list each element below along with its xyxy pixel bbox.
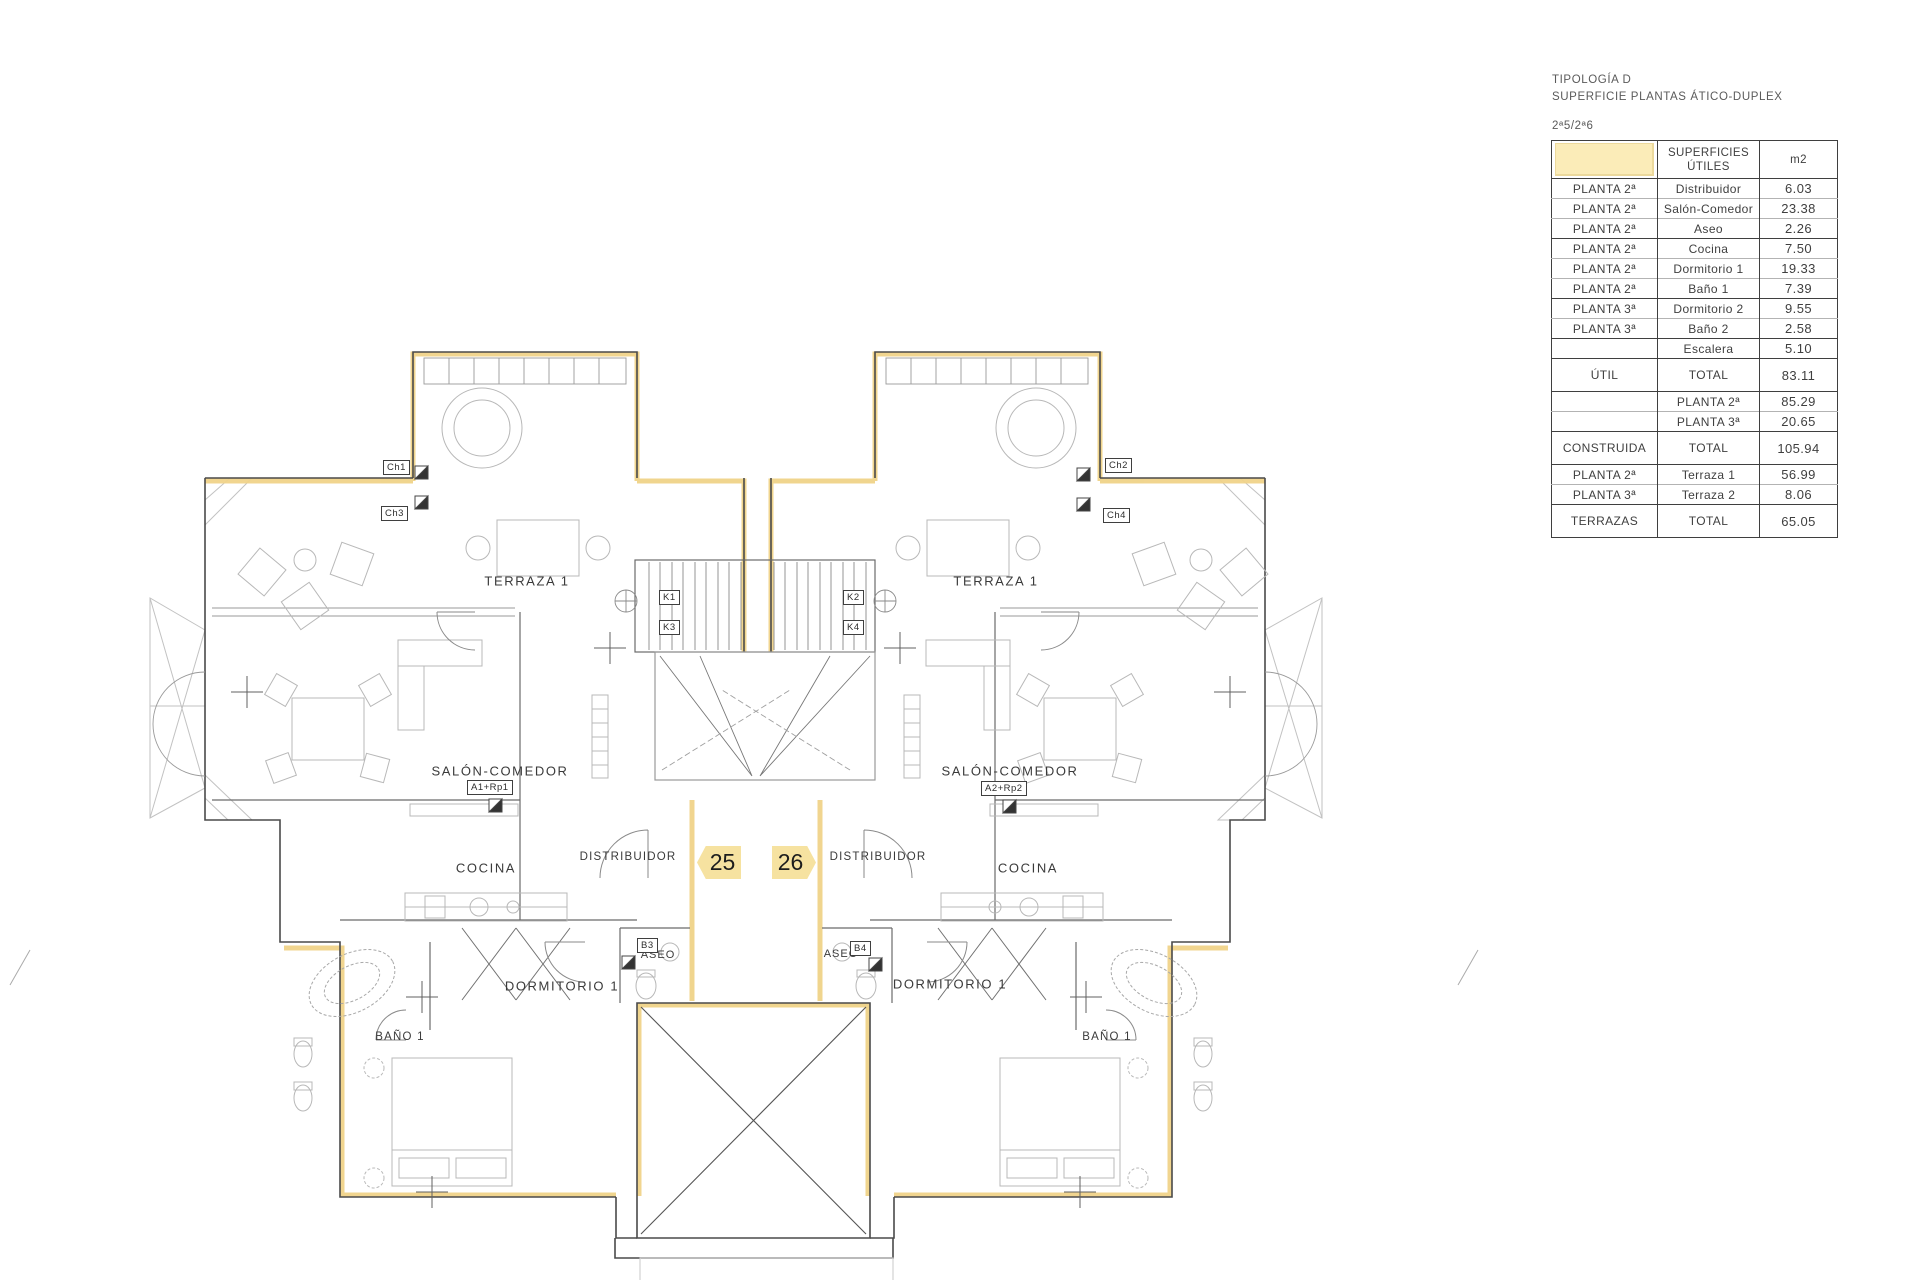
cell-room: Dormitorio 1 — [1658, 259, 1760, 279]
cell-zone: PLANTA 3ª — [1552, 299, 1658, 319]
cell-value: 105.94 — [1760, 432, 1838, 465]
header-superficies-line1: SUPERFICIES — [1658, 146, 1759, 160]
tag-ch1: Ch1 — [383, 460, 410, 475]
surface-table-row: PLANTA 2ªSalón-Comedor23.38 — [1552, 199, 1838, 219]
cell-zone: PLANTA 2ª — [1552, 465, 1658, 485]
highlight-legend-swatch — [1555, 143, 1654, 176]
unit-badge-25: 25 — [695, 844, 743, 881]
tag-k1: K1 — [659, 590, 680, 605]
cell-zone — [1552, 339, 1658, 359]
cell-room: PLANTA 3ª — [1658, 412, 1760, 432]
cell-value: 23.38 — [1760, 199, 1838, 219]
surface-table-row: PLANTA 2ªDistribuidor6.03 — [1552, 179, 1838, 199]
tag-ch3: Ch3 — [381, 506, 408, 521]
cell-zone: PLANTA 2ª — [1552, 239, 1658, 259]
cell-zone — [1552, 392, 1658, 412]
cell-zone: ÚTIL — [1552, 359, 1658, 392]
cell-value: 2.26 — [1760, 219, 1838, 239]
header-m2: m2 — [1760, 141, 1838, 179]
room-label-terraza-right: TERRAZA 1 — [953, 574, 1038, 589]
surface-table-header-row: SUPERFICIES ÚTILES m2 — [1552, 141, 1838, 179]
header-superficies: SUPERFICIES ÚTILES — [1658, 141, 1760, 179]
cell-value: 9.55 — [1760, 299, 1838, 319]
cell-zone: PLANTA 2ª — [1552, 199, 1658, 219]
surface-table-row: PLANTA 2ªTerraza 156.99 — [1552, 465, 1838, 485]
cell-room: TOTAL — [1658, 432, 1760, 465]
tag-ch4: Ch4 — [1103, 508, 1130, 523]
interior-walls — [212, 560, 1265, 1030]
cell-room: Salón-Comedor — [1658, 199, 1760, 219]
cell-room: Terraza 2 — [1658, 485, 1760, 505]
cell-value: 6.03 — [1760, 179, 1838, 199]
door-arcs — [376, 612, 1136, 1040]
cell-value: 19.33 — [1760, 259, 1838, 279]
cell-room: TOTAL — [1658, 359, 1760, 392]
cell-value: 20.65 — [1760, 412, 1838, 432]
cell-room: Baño 2 — [1658, 319, 1760, 339]
room-label-terraza-left: TERRAZA 1 — [484, 574, 569, 589]
unit-number-25: 25 — [695, 844, 743, 881]
unit-reference: 2ª5/2ª6 — [1552, 118, 1783, 135]
surface-table-wrap: SUPERFICIES ÚTILES m2 PLANTA 2ªDistribui… — [1551, 140, 1837, 538]
cell-value: 8.06 — [1760, 485, 1838, 505]
cell-zone: PLANTA 2ª — [1552, 259, 1658, 279]
room-label-bano-right: BAÑO 1 — [1082, 1031, 1131, 1043]
room-label-distribuidor-left: DISTRIBUIDOR — [580, 851, 677, 863]
cell-room: Baño 1 — [1658, 279, 1760, 299]
cell-room: TOTAL — [1658, 505, 1760, 538]
room-label-cocina-right: COCINA — [998, 861, 1058, 876]
surface-table-row: ÚTILTOTAL83.11 — [1552, 359, 1838, 392]
tag-b3: B3 — [637, 938, 658, 953]
cell-room: Distribuidor — [1658, 179, 1760, 199]
cell-room: Dormitorio 2 — [1658, 299, 1760, 319]
surface-table-row: PLANTA 3ªTerraza 28.06 — [1552, 485, 1838, 505]
cell-value: 7.39 — [1760, 279, 1838, 299]
cell-room: Aseo — [1658, 219, 1760, 239]
surface-table-row: PLANTA 2ªCocina7.50 — [1552, 239, 1838, 259]
surface-table-body: PLANTA 2ªDistribuidor6.03PLANTA 2ªSalón-… — [1552, 179, 1838, 538]
surface-table-row: PLANTA 3ªDormitorio 29.55 — [1552, 299, 1838, 319]
tag-k2: K2 — [843, 590, 864, 605]
surface-table-row: TERRAZASTOTAL65.05 — [1552, 505, 1838, 538]
room-label-dormitorio-left: DORMITORIO 1 — [505, 979, 619, 994]
unit-badge-26: 26 — [770, 844, 818, 881]
surface-table-row: PLANTA 2ªAseo2.26 — [1552, 219, 1838, 239]
header-superficies-line2: ÚTILES — [1658, 160, 1759, 174]
surface-table-row: PLANTA 2ª85.29 — [1552, 392, 1838, 412]
page: TERRAZA 1 TERRAZA 1 SALÓN-COMEDOR SALÓN-… — [0, 0, 1920, 1280]
dimension-marks — [10, 632, 1478, 1208]
tag-k3: K3 — [659, 620, 680, 635]
outer-walls — [205, 352, 1265, 1258]
cell-zone: CONSTRUIDA — [1552, 432, 1658, 465]
surface-table-row: PLANTA 3ª20.65 — [1552, 412, 1838, 432]
cell-value: 65.05 — [1760, 505, 1838, 538]
cell-zone — [1552, 412, 1658, 432]
cell-zone: TERRAZAS — [1552, 505, 1658, 538]
roof-hatch — [150, 478, 1322, 820]
room-label-bano-left: BAÑO 1 — [375, 1031, 424, 1043]
cell-room: Terraza 1 — [1658, 465, 1760, 485]
cell-zone: PLANTA 2ª — [1552, 279, 1658, 299]
tag-a2-rp2: A2+Rp2 — [981, 781, 1027, 796]
cell-value: 5.10 — [1760, 339, 1838, 359]
void-cross — [640, 1007, 893, 1280]
cell-value: 7.50 — [1760, 239, 1838, 259]
header-swatch-cell — [1552, 141, 1658, 179]
cell-zone: PLANTA 3ª — [1552, 485, 1658, 505]
windows — [153, 358, 1317, 776]
surface-table: SUPERFICIES ÚTILES m2 PLANTA 2ªDistribui… — [1551, 140, 1838, 538]
cell-room: Cocina — [1658, 239, 1760, 259]
cell-value: 83.11 — [1760, 359, 1838, 392]
tag-k4: K4 — [843, 620, 864, 635]
title-block: TIPOLOGÍA D SUPERFICIE PLANTAS ÁTICO-DUP… — [1552, 72, 1783, 135]
tag-ch2: Ch2 — [1105, 458, 1132, 473]
cell-value: 2.58 — [1760, 319, 1838, 339]
tag-a1-rp1: A1+Rp1 — [467, 780, 513, 795]
cell-zone: PLANTA 2ª — [1552, 219, 1658, 239]
cell-value: 85.29 — [1760, 392, 1838, 412]
surface-table-row: Escalera5.10 — [1552, 339, 1838, 359]
surface-table-row: CONSTRUIDATOTAL105.94 — [1552, 432, 1838, 465]
room-label-dormitorio-right: DORMITORIO 1 — [893, 977, 1007, 992]
cell-zone: PLANTA 2ª — [1552, 179, 1658, 199]
surface-table-row: PLANTA 3ªBaño 22.58 — [1552, 319, 1838, 339]
room-label-salon-left: SALÓN-COMEDOR — [431, 764, 568, 779]
section-markers — [415, 466, 1090, 971]
cell-room: Escalera — [1658, 339, 1760, 359]
room-label-distribuidor-right: DISTRIBUIDOR — [830, 851, 927, 863]
surface-table-row: PLANTA 2ªBaño 17.39 — [1552, 279, 1838, 299]
unit-highlight-outline — [205, 354, 1265, 1196]
room-label-salon-right: SALÓN-COMEDOR — [941, 764, 1078, 779]
cell-zone: PLANTA 3ª — [1552, 319, 1658, 339]
surface-table-row: PLANTA 2ªDormitorio 119.33 — [1552, 259, 1838, 279]
typology-title: TIPOLOGÍA D — [1552, 72, 1783, 89]
typology-subtitle: SUPERFICIE PLANTAS ÁTICO-DUPLEX — [1552, 89, 1783, 106]
unit-number-26: 26 — [770, 844, 818, 881]
cell-value: 56.99 — [1760, 465, 1838, 485]
tag-b4: B4 — [850, 941, 871, 956]
cell-room: PLANTA 2ª — [1658, 392, 1760, 412]
room-label-cocina-left: COCINA — [456, 861, 516, 876]
